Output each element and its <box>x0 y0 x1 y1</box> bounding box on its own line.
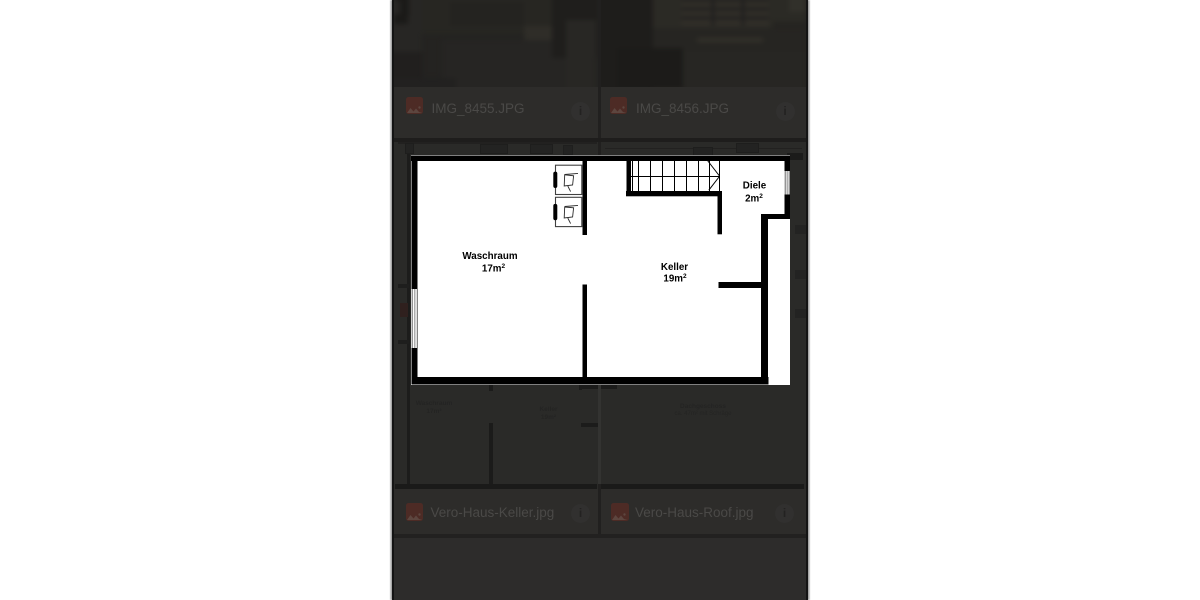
svg-text:17m2: 17m2 <box>481 263 505 275</box>
svg-text:2m2: 2m2 <box>745 193 763 205</box>
svg-text:Keller: Keller <box>660 262 687 273</box>
svg-text:Waschraum: Waschraum <box>462 251 517 262</box>
svg-text:19m2: 19m2 <box>663 273 687 285</box>
svg-text:Diele: Diele <box>742 181 766 192</box>
